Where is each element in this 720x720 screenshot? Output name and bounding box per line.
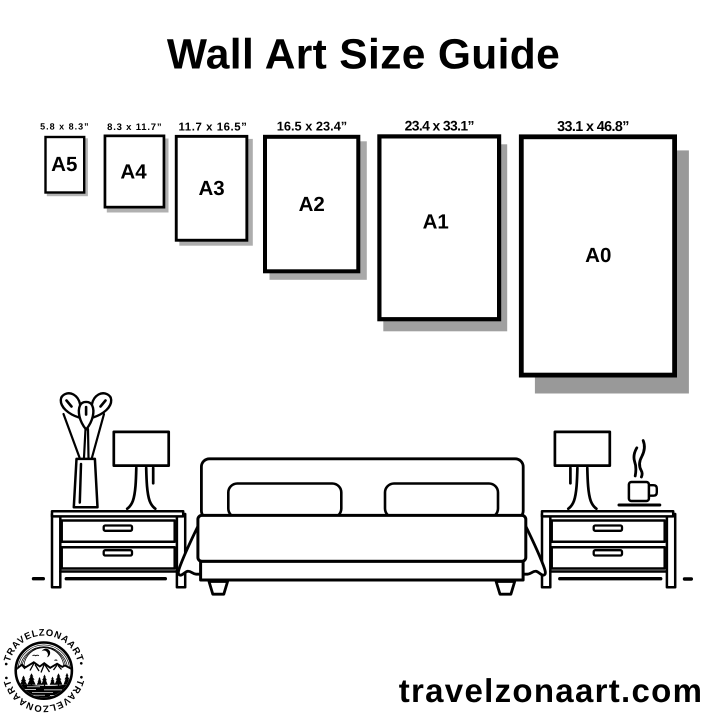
svg-text:A4: A4 bbox=[120, 160, 147, 183]
svg-text:A5: A5 bbox=[51, 153, 77, 176]
svg-text:11.7 x 16.5”: 11.7 x 16.5” bbox=[179, 121, 248, 133]
svg-text:travelzonaart.com: travelzonaart.com bbox=[399, 672, 704, 709]
svg-text:A2: A2 bbox=[299, 193, 325, 216]
svg-text:A3: A3 bbox=[198, 177, 224, 200]
svg-text:23.4 x 33.1”: 23.4 x 33.1” bbox=[405, 118, 474, 134]
svg-text:A0: A0 bbox=[585, 244, 611, 267]
svg-text:A1: A1 bbox=[423, 211, 449, 234]
svg-text:16.5 x 23.4”: 16.5 x 23.4” bbox=[277, 119, 347, 134]
svg-text:Wall Art Size Guide: Wall Art Size Guide bbox=[167, 32, 560, 79]
svg-text:5.8 x 8.3”: 5.8 x 8.3” bbox=[40, 121, 90, 131]
svg-text:8.3 x 11.7”: 8.3 x 11.7” bbox=[107, 122, 162, 133]
svg-text:33.1 x 46.8”: 33.1 x 46.8” bbox=[557, 119, 629, 135]
